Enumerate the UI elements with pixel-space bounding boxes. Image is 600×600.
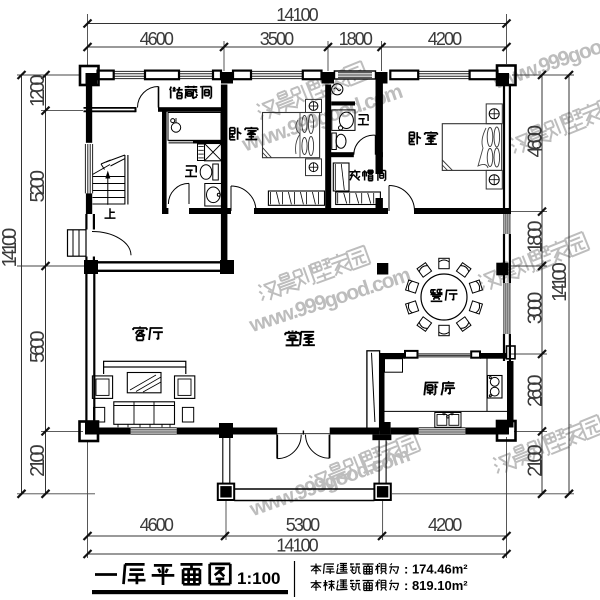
svg-text:2100: 2100 (525, 444, 547, 476)
svg-text:4200: 4200 (428, 515, 462, 535)
svg-text:2100: 2100 (27, 444, 49, 476)
svg-text:5600: 5600 (27, 331, 49, 363)
svg-text:2600: 2600 (525, 375, 547, 407)
svg-text:5300: 5300 (286, 515, 320, 535)
svg-text:3000: 3000 (525, 292, 547, 324)
svg-text:1800: 1800 (339, 29, 373, 49)
svg-text:1800: 1800 (525, 221, 547, 253)
svg-text:1:100: 1:100 (237, 569, 280, 588)
svg-text:: 819.10m²: : 819.10m² (404, 578, 468, 593)
svg-text:5200: 5200 (27, 170, 49, 202)
svg-text:14100: 14100 (276, 5, 318, 25)
svg-text:1200: 1200 (27, 75, 49, 107)
svg-text:4600: 4600 (140, 29, 174, 49)
svg-text:14100: 14100 (276, 536, 318, 556)
svg-text:: 174.46m²: : 174.46m² (404, 562, 468, 577)
svg-text:4200: 4200 (428, 29, 462, 49)
svg-text:4600: 4600 (140, 515, 174, 535)
svg-text:4600: 4600 (525, 125, 547, 157)
svg-text:14100: 14100 (549, 262, 571, 301)
svg-text:3500: 3500 (260, 29, 294, 49)
svg-text:14100: 14100 (0, 228, 21, 267)
